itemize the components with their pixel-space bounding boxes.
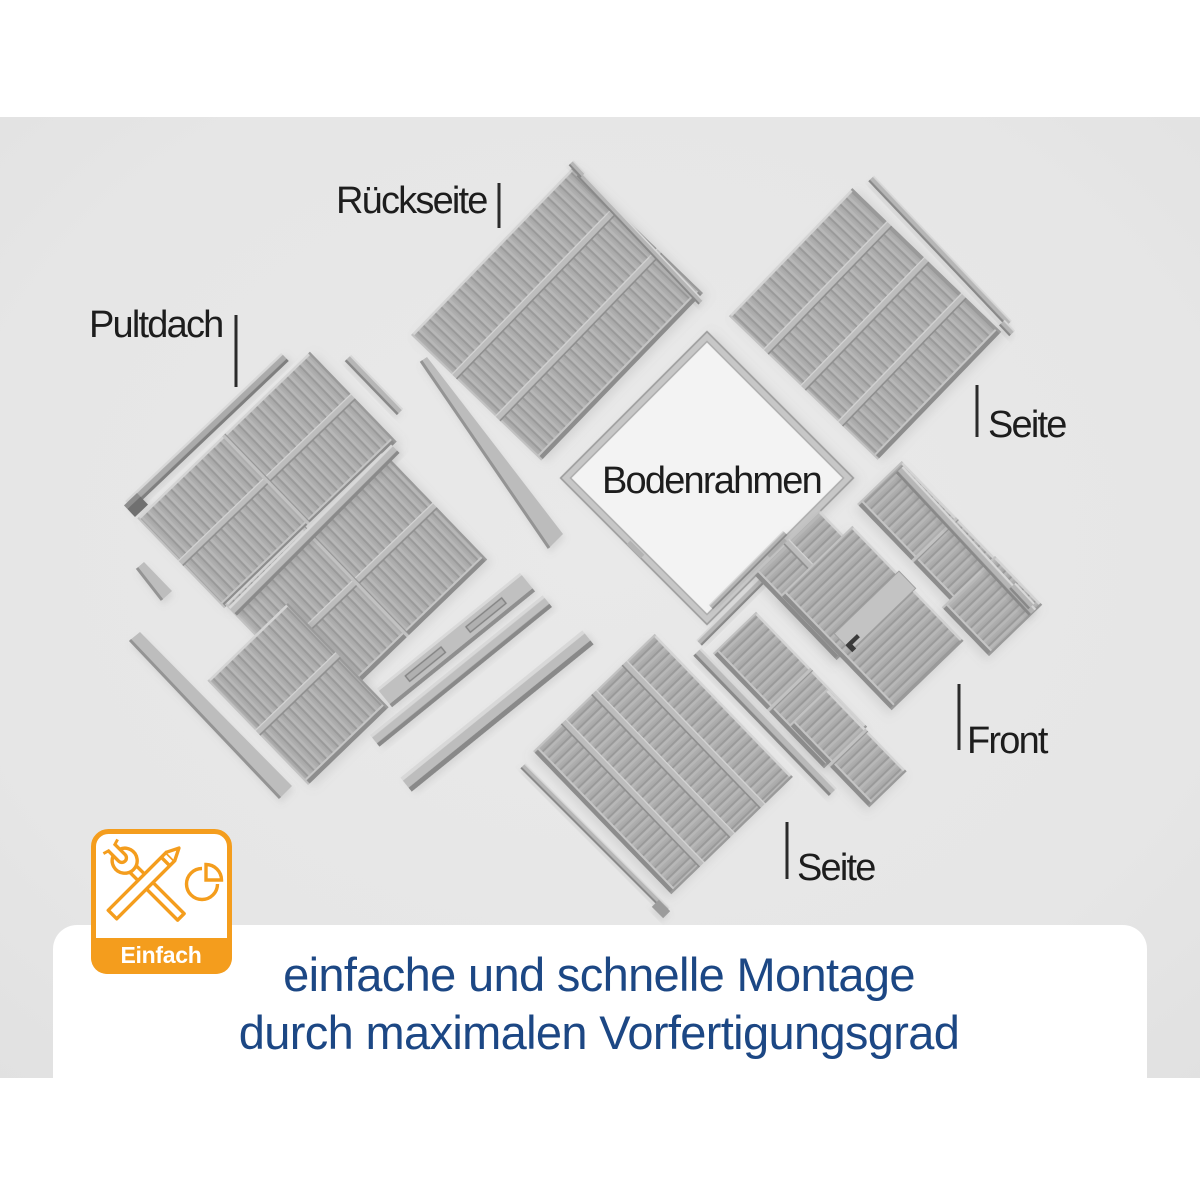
svg-text:durch maximalen Vorfertigungsg: durch maximalen Vorfertigungsgrad — [239, 1006, 960, 1059]
svg-text:Front: Front — [967, 720, 1049, 762]
svg-text:Rückseite: Rückseite — [336, 180, 487, 222]
svg-text:Einfach: Einfach — [121, 942, 202, 968]
svg-text:Bodenrahmen: Bodenrahmen — [602, 460, 821, 502]
svg-text:einfache und schnelle Montage: einfache und schnelle Montage — [283, 948, 915, 1001]
svg-text:Seite: Seite — [988, 404, 1066, 446]
svg-text:Pultdach: Pultdach — [89, 304, 222, 346]
svg-text:Seite: Seite — [797, 847, 875, 889]
